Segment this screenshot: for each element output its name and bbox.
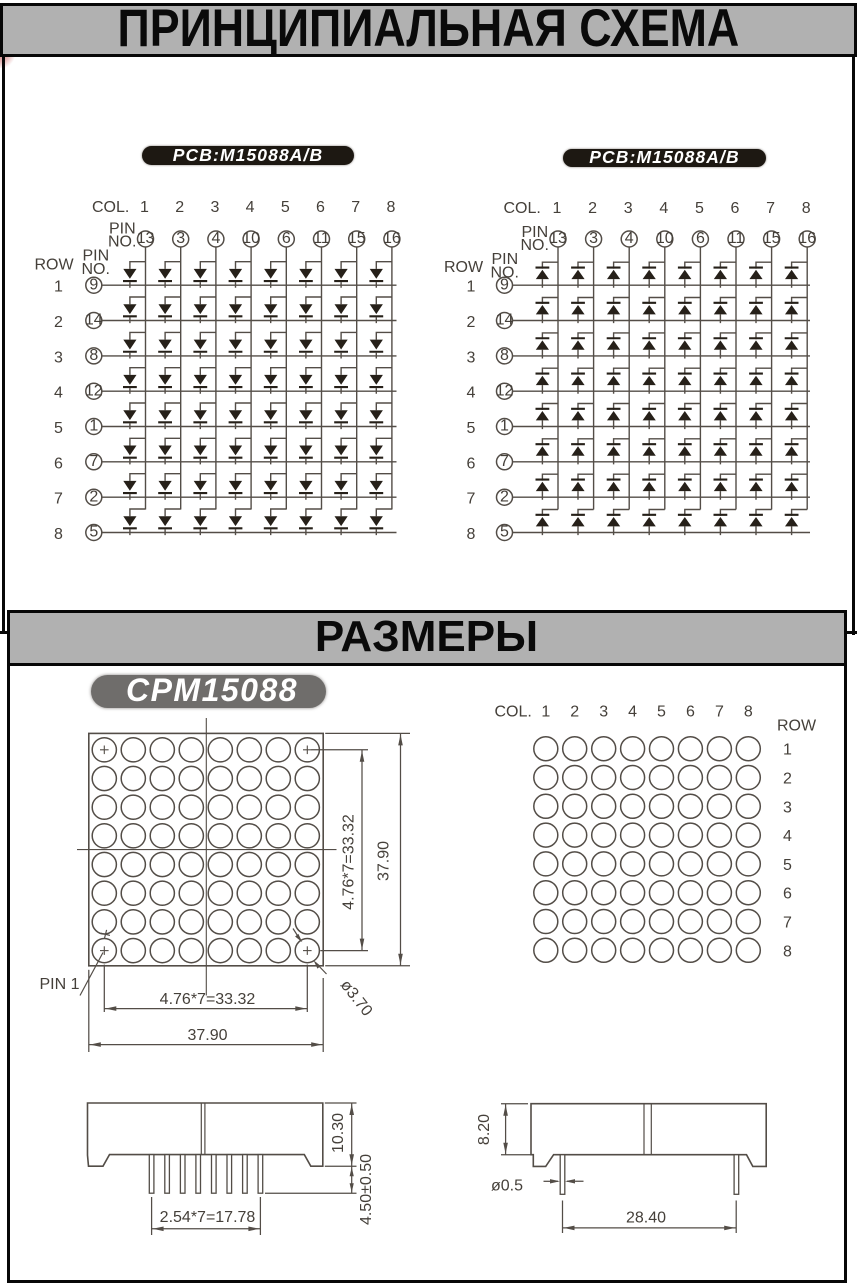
svg-text:2: 2 (500, 488, 509, 505)
svg-text:8: 8 (783, 943, 792, 960)
svg-text:6: 6 (54, 455, 63, 472)
svg-text:2: 2 (89, 488, 98, 505)
svg-text:1: 1 (541, 704, 550, 721)
svg-text:10.30: 10.30 (330, 1113, 347, 1153)
svg-text:7: 7 (467, 491, 476, 508)
svg-text:3: 3 (54, 349, 63, 366)
svg-text:5: 5 (467, 420, 476, 437)
svg-text:13: 13 (137, 230, 155, 247)
svg-text:13: 13 (549, 230, 567, 247)
svg-text:8.20: 8.20 (476, 1114, 493, 1145)
svg-text:4: 4 (659, 200, 668, 217)
svg-text:2.54*7=17.78: 2.54*7=17.78 (160, 1209, 256, 1226)
svg-text:6: 6 (696, 230, 705, 247)
svg-text:ROW: ROW (777, 718, 817, 735)
svg-text:4: 4 (211, 230, 220, 247)
svg-text:9: 9 (500, 276, 509, 293)
svg-text:10: 10 (656, 230, 674, 247)
svg-text:9: 9 (89, 276, 98, 293)
svg-text:1: 1 (783, 742, 792, 759)
svg-text:4: 4 (54, 385, 63, 402)
svg-text:8: 8 (386, 199, 395, 216)
svg-text:7: 7 (783, 915, 792, 932)
svg-text:6: 6 (731, 200, 740, 217)
svg-text:15: 15 (763, 230, 781, 247)
svg-text:1: 1 (553, 200, 562, 217)
svg-text:4.76*7=33.32: 4.76*7=33.32 (341, 814, 358, 910)
svg-text:8: 8 (54, 526, 63, 543)
svg-text:12: 12 (85, 382, 103, 399)
svg-text:11: 11 (728, 230, 745, 247)
svg-text:3: 3 (589, 230, 598, 247)
svg-text:16: 16 (383, 230, 401, 247)
svg-text:NO.: NO. (108, 234, 136, 251)
svg-text:ROW: ROW (35, 257, 75, 274)
svg-text:2: 2 (783, 771, 792, 788)
svg-text:8: 8 (89, 347, 98, 364)
svg-text:7: 7 (54, 491, 63, 508)
svg-text:4: 4 (246, 199, 255, 216)
svg-text:11: 11 (313, 230, 330, 247)
svg-text:15: 15 (348, 230, 366, 247)
svg-text:7: 7 (715, 704, 724, 721)
svg-text:3: 3 (467, 349, 476, 366)
svg-text:5: 5 (281, 199, 290, 216)
svg-text:7: 7 (500, 453, 509, 470)
svg-text:3: 3 (624, 200, 633, 217)
svg-text:5: 5 (695, 200, 704, 217)
svg-text:7: 7 (766, 200, 775, 217)
svg-text:7: 7 (89, 453, 98, 470)
svg-text:37.90: 37.90 (376, 841, 393, 881)
svg-text:2: 2 (467, 314, 476, 331)
svg-text:8: 8 (802, 200, 811, 217)
svg-text:5: 5 (89, 524, 98, 541)
svg-text:ø0.5: ø0.5 (491, 1178, 523, 1195)
svg-text:NO.: NO. (521, 237, 549, 254)
svg-text:7: 7 (351, 199, 360, 216)
svg-text:3: 3 (599, 704, 608, 721)
svg-text:3: 3 (783, 799, 792, 816)
svg-text:4: 4 (628, 704, 637, 721)
svg-text:6: 6 (783, 886, 792, 903)
svg-text:6: 6 (686, 704, 695, 721)
svg-text:2: 2 (588, 200, 597, 217)
svg-text:ROW: ROW (444, 259, 484, 276)
svg-text:16: 16 (798, 230, 816, 247)
svg-text:4: 4 (625, 230, 634, 247)
svg-text:37.90: 37.90 (187, 1027, 227, 1044)
svg-text:4.76*7=33.32: 4.76*7=33.32 (160, 991, 256, 1008)
svg-text:8: 8 (467, 526, 476, 543)
svg-text:1: 1 (54, 279, 63, 296)
svg-text:6: 6 (316, 199, 325, 216)
svg-text:2: 2 (570, 704, 579, 721)
svg-text:5: 5 (783, 857, 792, 874)
svg-text:14: 14 (85, 312, 103, 329)
svg-text:2: 2 (54, 314, 63, 331)
svg-text:1: 1 (500, 418, 509, 435)
svg-text:5: 5 (657, 704, 666, 721)
svg-text:COL.: COL. (495, 704, 532, 721)
svg-text:12: 12 (496, 382, 514, 399)
svg-text:ø3.70: ø3.70 (337, 977, 376, 1020)
svg-text:PIN 1: PIN 1 (40, 976, 80, 993)
svg-text:4.50±0.50: 4.50±0.50 (358, 1154, 375, 1225)
svg-text:COL.: COL. (504, 200, 541, 217)
svg-text:6: 6 (282, 230, 291, 247)
svg-text:14: 14 (496, 312, 514, 329)
svg-text:10: 10 (242, 230, 260, 247)
svg-text:5: 5 (500, 524, 509, 541)
svg-text:8: 8 (744, 704, 753, 721)
svg-text:1: 1 (140, 199, 149, 216)
svg-text:28.40: 28.40 (626, 1210, 666, 1227)
svg-text:4: 4 (783, 828, 792, 845)
svg-text:2: 2 (175, 199, 184, 216)
svg-text:3: 3 (176, 230, 185, 247)
svg-text:COL.: COL. (92, 199, 129, 216)
svg-text:5: 5 (54, 420, 63, 437)
svg-text:8: 8 (500, 347, 509, 364)
svg-text:6: 6 (467, 455, 476, 472)
svg-text:1: 1 (89, 418, 98, 435)
svg-text:1: 1 (467, 279, 476, 296)
svg-text:3: 3 (210, 199, 219, 216)
svg-text:4: 4 (467, 385, 476, 402)
